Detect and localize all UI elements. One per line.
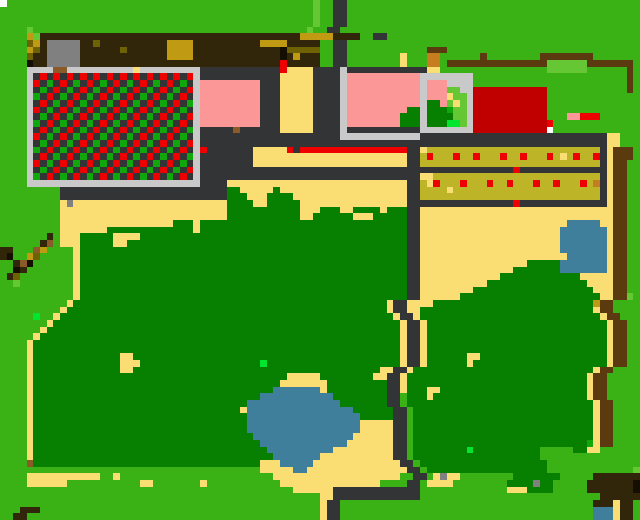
- world-map-canvas[interactable]: [0, 0, 640, 520]
- game-screen: [0, 0, 640, 520]
